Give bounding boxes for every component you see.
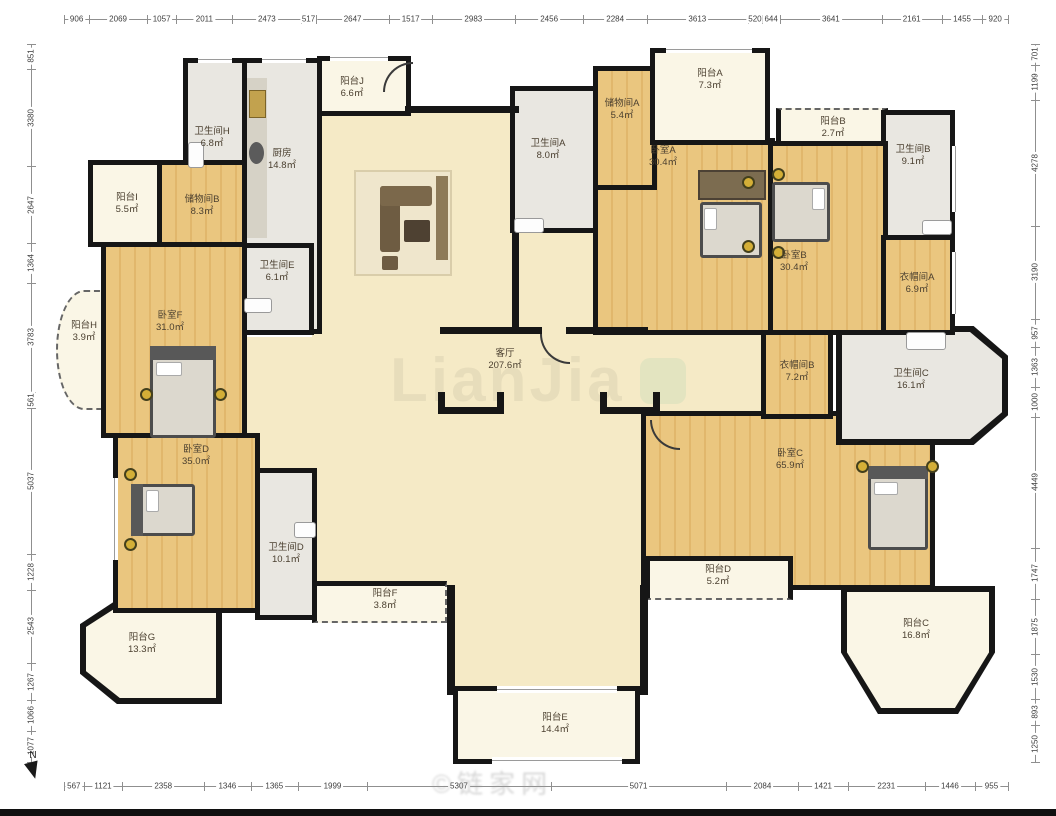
- floorplan-canvas: 卫生间H6.8㎡ 厨房14.8㎡ 阳台J6.6㎡ 阳台I5.5㎡ 储物间B8.3…: [0, 0, 1056, 816]
- dimension-label: 1057: [151, 15, 173, 24]
- ruler-tick: [316, 15, 317, 24]
- wall-segment: [600, 407, 660, 414]
- room-name: 阳台I: [116, 192, 139, 204]
- room-area: 6.9㎡: [900, 284, 935, 296]
- room-label-balcony-b: 阳台B2.7㎡: [820, 116, 845, 140]
- ruler-tick: [27, 283, 36, 284]
- ruler-tick: [27, 663, 36, 664]
- compass-north: N: [22, 750, 44, 779]
- window-segment: [497, 686, 617, 693]
- dimension-label: 1000: [1031, 391, 1040, 413]
- ruler-tick: [367, 782, 368, 791]
- ruler-tick: [1031, 548, 1040, 549]
- room-area: 5.5㎡: [116, 204, 139, 216]
- room-area: 5.4㎡: [605, 110, 640, 122]
- dimension-label: 3641: [820, 15, 842, 24]
- wardrobe: [698, 170, 766, 200]
- dimension-label: 3190: [1031, 262, 1040, 284]
- room-name: 阳台G: [128, 632, 156, 644]
- room-label-balcony-h: 阳台H3.9㎡: [71, 320, 97, 344]
- ruler-tick: [780, 15, 781, 24]
- bath-fixture: [514, 218, 544, 233]
- room-label-balcony-c: 阳台C16.8㎡: [902, 618, 930, 642]
- ruler-tick: [1008, 15, 1009, 24]
- room-name: 阳台E: [541, 712, 569, 724]
- room-balcony-a: [650, 48, 770, 145]
- ruler-tick: [298, 782, 299, 791]
- dimension-label: 1747: [1031, 562, 1040, 584]
- room-name: 阳台F: [373, 588, 398, 600]
- lamp-dot: [124, 538, 137, 551]
- room-name: 卫生间C: [893, 368, 928, 380]
- room-name: 阳台D: [705, 564, 731, 576]
- ruler-tick: [1031, 387, 1040, 388]
- wall-segment: [405, 106, 519, 113]
- room-name: 卫生间H: [194, 126, 229, 138]
- ruler-tick: [1031, 725, 1040, 726]
- ruler-tick: [251, 782, 252, 791]
- dimension-label: 2647: [342, 15, 364, 24]
- room-name: 阳台A: [697, 68, 722, 80]
- room-name: 衣帽间A: [900, 272, 935, 284]
- room-label-balcony-f: 阳台F3.8㎡: [373, 588, 398, 612]
- ruler-tick: [389, 15, 390, 24]
- dimension-label: 644: [762, 15, 779, 24]
- ruler-tick: [1031, 100, 1040, 101]
- dimension-label: 2011: [194, 15, 215, 24]
- room-area: 16.8㎡: [902, 630, 930, 642]
- ruler-tick: [27, 166, 36, 167]
- ruler-tick: [27, 243, 36, 244]
- dimension-label: 2647: [27, 194, 36, 216]
- bed-pillow: [156, 362, 182, 376]
- ruler-tick: [64, 15, 65, 24]
- dimension-label: 4278: [1031, 152, 1040, 174]
- ruler-tick: [176, 15, 177, 24]
- room-label-balcony-g: 阳台G13.3㎡: [128, 632, 156, 656]
- room-area: 8.3㎡: [185, 206, 220, 218]
- wall-segment: [440, 327, 542, 334]
- room-name: 储物间B: [185, 194, 220, 206]
- dimension-label: 520: [746, 15, 763, 24]
- dimension-label: 4449: [1031, 471, 1040, 493]
- dimension-label: 2084: [751, 782, 773, 791]
- ruler-tick: [1031, 319, 1040, 320]
- dimension-label: 2473: [256, 15, 278, 24]
- dimension-label: 2456: [538, 15, 560, 24]
- room-label-bathroom-d: 卫生间D10.1㎡: [268, 542, 303, 566]
- wall-segment: [447, 585, 455, 695]
- room-label-closet-b: 衣帽间B7.2㎡: [780, 360, 815, 384]
- ruler-tick: [583, 15, 584, 24]
- ruler-tick: [1031, 65, 1040, 66]
- window-segment: [198, 56, 232, 63]
- ruler-tick: [982, 15, 983, 24]
- ruler-tick: [27, 44, 36, 45]
- watermark-bottom: ©链家网: [432, 764, 553, 801]
- ruler-tick: [1008, 782, 1009, 791]
- room-name: 阳台J: [340, 76, 364, 88]
- room-name: 卧室D: [182, 444, 210, 456]
- dimension-label: 2161: [901, 15, 923, 24]
- dimension-label: 1364: [27, 252, 36, 274]
- room-label-bathroom-c: 卫生间C16.1㎡: [893, 368, 928, 392]
- dimension-label: 1250: [1031, 733, 1040, 755]
- dimension-label: 2543: [27, 616, 36, 638]
- room-label-balcony-i: 阳台I5.5㎡: [116, 192, 139, 216]
- dimension-ruler-left: 8513380264713643783561503712282543126710…: [24, 44, 38, 762]
- lamp-dot: [772, 168, 785, 181]
- room-area: 8.0㎡: [531, 150, 566, 162]
- room-label-storage-a: 储物间A5.4㎡: [605, 98, 640, 122]
- room-name: 卧室F: [156, 310, 184, 322]
- bath-fixture: [906, 332, 946, 350]
- room-label-bedroom-d: 卧室D35.0㎡: [182, 444, 210, 468]
- watermark-logo: [640, 358, 686, 404]
- room-name: 卧室C: [776, 448, 804, 460]
- ruler-tick: [147, 15, 148, 24]
- room-area: 6.8㎡: [194, 138, 229, 150]
- ruler-tick: [84, 782, 85, 791]
- room-label-kitchen: 厨房14.8㎡: [268, 148, 296, 172]
- room-label-living: 客厅207.6㎡: [488, 348, 521, 372]
- room-area: 14.4㎡: [541, 724, 569, 736]
- window-segment: [952, 252, 959, 314]
- dimension-ruler-right: 7011199427831909571363100044491747187515…: [1028, 44, 1042, 762]
- room-area: 7.2㎡: [780, 372, 815, 384]
- ruler-tick: [122, 782, 123, 791]
- ruler-tick: [1031, 599, 1040, 600]
- room-area: 3.9㎡: [71, 332, 97, 344]
- lamp-dot: [742, 240, 755, 253]
- dimension-label: 3380: [27, 107, 36, 129]
- dimension-label: 1346: [216, 782, 238, 791]
- dimension-label: 1365: [263, 782, 285, 791]
- ruler-tick: [1031, 699, 1040, 700]
- room-name: 卫生间B: [896, 144, 931, 156]
- tv-cabinet: [436, 176, 448, 260]
- dimension-label: 957: [1031, 325, 1040, 342]
- dimension-label: 906: [68, 15, 85, 24]
- ruler-tick: [798, 782, 799, 791]
- lamp-dot: [140, 388, 153, 401]
- dimension-label: 5071: [628, 782, 650, 791]
- dimension-label: 1875: [1031, 616, 1040, 638]
- dimension-label: 1066: [27, 704, 36, 726]
- dimension-label: 1446: [939, 782, 961, 791]
- living-room-floor: [517, 230, 602, 335]
- room-area: 35.0㎡: [182, 456, 210, 468]
- sofa: [380, 186, 432, 206]
- wall-segment: [566, 327, 648, 334]
- ruler-tick: [942, 15, 943, 24]
- living-room-floor: [450, 415, 648, 693]
- room-label-balcony-a: 阳台A7.3㎡: [697, 68, 722, 92]
- window-segment: [492, 757, 622, 764]
- lamp-dot: [124, 468, 137, 481]
- wall-segment: [640, 585, 648, 695]
- bed-headboard: [868, 466, 928, 479]
- room-label-bathroom-e: 卫生间E6.1㎡: [260, 260, 295, 284]
- dimension-label: 1999: [322, 782, 344, 791]
- coffee-table: [404, 220, 430, 242]
- room-label-storage-b: 储物间B8.3㎡: [185, 194, 220, 218]
- window-segment: [666, 46, 752, 53]
- compass-arrow-icon: [24, 760, 42, 780]
- room-name: 阳台B: [820, 116, 845, 128]
- balcony-c-bay: [841, 586, 995, 714]
- ruler-tick: [27, 554, 36, 555]
- room-area: 3.8㎡: [373, 600, 398, 612]
- dimension-label: 1455: [951, 15, 973, 24]
- window-segment: [262, 56, 306, 63]
- armchair: [382, 256, 398, 270]
- wall-segment: [512, 226, 519, 334]
- ruler-tick: [27, 731, 36, 732]
- dimension-label: 1121: [92, 782, 113, 791]
- wall-segment: [438, 407, 504, 414]
- compass-label: N: [22, 750, 44, 761]
- room-storage-a: [593, 66, 657, 190]
- room-area: 6.6㎡: [340, 88, 364, 100]
- room-label-bathroom-a: 卫生间A8.0㎡: [531, 138, 566, 162]
- room-label-closet-a: 衣帽间A6.9㎡: [900, 272, 935, 296]
- bath-fixture: [294, 522, 316, 538]
- bath-fixture: [244, 298, 272, 313]
- room-area: 16.1㎡: [893, 380, 928, 392]
- room-name: 阳台H: [71, 320, 97, 332]
- bed-headboard: [150, 346, 216, 360]
- lamp-dot: [214, 388, 227, 401]
- stove-icon: [249, 90, 266, 118]
- ruler-tick: [27, 408, 36, 409]
- dimension-label: 517: [300, 15, 317, 24]
- ruler-tick: [432, 15, 433, 24]
- dimension-label: 2358: [152, 782, 174, 791]
- room-label-bathroom-b: 卫生间B9.1㎡: [896, 144, 931, 168]
- room-bathroom-e: [242, 243, 314, 335]
- room-area: 207.6㎡: [488, 360, 521, 372]
- bath-fixture: [922, 220, 952, 235]
- ruler-tick: [1031, 762, 1040, 763]
- bed-headboard: [131, 484, 143, 536]
- sink-icon: [249, 142, 264, 164]
- dimension-label: 701: [1031, 46, 1040, 63]
- dimension-label: 2284: [604, 15, 626, 24]
- room-name: 卧室A: [649, 145, 677, 157]
- ruler-tick: [27, 69, 36, 70]
- room-label-balcony-j: 阳台J6.6㎡: [340, 76, 364, 100]
- ruler-tick: [975, 782, 976, 791]
- room-name: 卫生间E: [260, 260, 295, 272]
- room-area: 13.3㎡: [128, 644, 156, 656]
- room-area: 31.0㎡: [156, 322, 184, 334]
- dimension-ruler-top: 9062069105720112473517264715172983245622…: [64, 12, 1008, 26]
- room-area: 10.1㎡: [268, 554, 303, 566]
- ruler-tick: [232, 15, 233, 24]
- dimension-label: 2983: [462, 15, 484, 24]
- ruler-tick: [1031, 347, 1040, 348]
- ruler-tick: [27, 590, 36, 591]
- room-label-balcony-d: 阳台D5.2㎡: [705, 564, 731, 588]
- room-label-bedroom-b: 卧室B30.4㎡: [780, 250, 808, 274]
- room-area: 6.1㎡: [260, 272, 295, 284]
- window-segment: [330, 54, 388, 61]
- room-name: 厨房: [268, 148, 296, 160]
- dimension-label: 3613: [686, 15, 708, 24]
- ruler-tick: [27, 700, 36, 701]
- ruler-tick: [89, 15, 90, 24]
- lamp-dot: [926, 460, 939, 473]
- bed-pillow: [812, 188, 825, 210]
- dimension-label: 567: [65, 782, 82, 791]
- dimension-label: 851: [27, 48, 36, 65]
- room-area: 9.1㎡: [896, 156, 931, 168]
- room-name: 卧室B: [780, 250, 808, 262]
- window-segment: [111, 478, 118, 560]
- ruler-tick: [726, 782, 727, 791]
- ruler-tick: [515, 15, 516, 24]
- ruler-tick: [1031, 654, 1040, 655]
- room-area: 2.7㎡: [820, 128, 845, 140]
- bed-pillow: [146, 490, 159, 512]
- bottom-bar: [0, 809, 1056, 816]
- dimension-label: 2069: [107, 15, 129, 24]
- dimension-label: 1267: [27, 671, 36, 693]
- dimension-label: 1530: [1031, 666, 1040, 688]
- room-name: 衣帽间B: [780, 360, 815, 372]
- dimension-label: 1228: [27, 561, 36, 583]
- room-label-bedroom-c: 卧室C65.9㎡: [776, 448, 804, 472]
- room-label-balcony-e: 阳台E14.4㎡: [541, 712, 569, 736]
- ruler-tick: [647, 15, 648, 24]
- lamp-dot: [742, 176, 755, 189]
- dimension-label: 3783: [27, 326, 36, 348]
- room-name: 阳台C: [902, 618, 930, 630]
- room-label-bedroom-f: 卧室F31.0㎡: [156, 310, 184, 334]
- room-name: 卫生间D: [268, 542, 303, 554]
- dimension-label: 920: [986, 15, 1003, 24]
- room-area: 7.3㎡: [697, 80, 722, 92]
- dimension-label: 1363: [1031, 357, 1040, 379]
- ruler-tick: [1031, 417, 1040, 418]
- room-label-bathroom-h: 卫生间H6.8㎡: [194, 126, 229, 150]
- room-area: 65.9㎡: [776, 460, 804, 472]
- bed-pillow: [704, 208, 717, 230]
- room-area: 5.2㎡: [705, 576, 731, 588]
- ruler-tick: [204, 782, 205, 791]
- dimension-label: 1421: [812, 782, 834, 791]
- room-area: 30.4㎡: [780, 262, 808, 274]
- ruler-tick: [882, 15, 883, 24]
- room-area: 14.8㎡: [268, 160, 296, 172]
- dimension-label: 893: [1031, 703, 1040, 720]
- ruler-tick: [848, 782, 849, 791]
- dimension-label: 955: [983, 782, 1000, 791]
- room-name: 储物间A: [605, 98, 640, 110]
- ruler-tick: [1031, 226, 1040, 227]
- ruler-tick: [925, 782, 926, 791]
- room-name: 卫生间A: [531, 138, 566, 150]
- dimension-label: 1199: [1031, 72, 1040, 93]
- window-segment: [952, 146, 959, 212]
- room-area: 30.4㎡: [649, 157, 677, 169]
- balcony-c-floor: [847, 592, 989, 708]
- dimension-label: 5037: [27, 470, 36, 492]
- lamp-dot: [856, 460, 869, 473]
- dimension-label: 1517: [400, 15, 422, 24]
- bed-pillow: [874, 482, 898, 495]
- room-label-bedroom-a: 卧室A30.4㎡: [649, 145, 677, 169]
- dimension-label: 561: [27, 392, 36, 409]
- room-name: 客厅: [488, 348, 521, 360]
- dimension-label: 2231: [875, 782, 897, 791]
